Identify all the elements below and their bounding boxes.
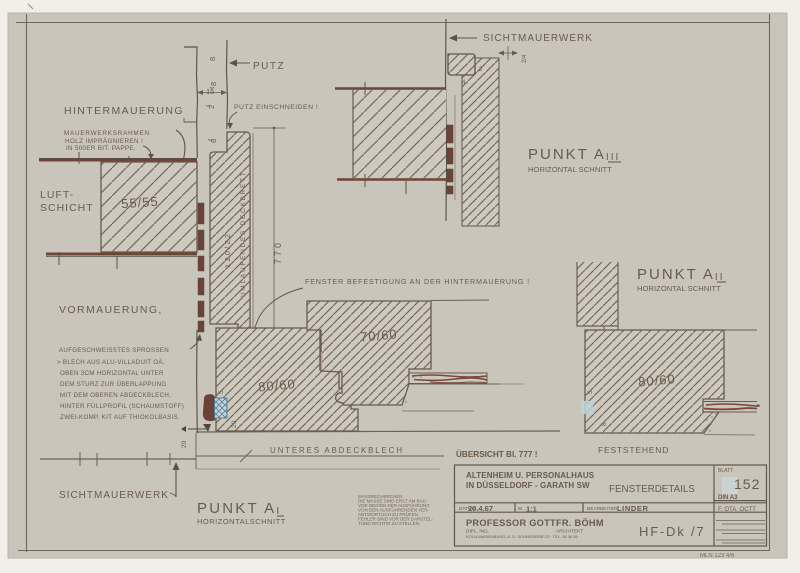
svg-text:55/55: 55/55 [121, 194, 160, 212]
svg-text:IN 500ER BIT. PAPPE.: IN 500ER BIT. PAPPE. [66, 145, 136, 152]
svg-text:ALTENHEIM U. PERSONALHAUS: ALTENHEIM U. PERSONALHAUS [466, 471, 595, 480]
svg-text:LUFT-: LUFT- [40, 189, 74, 201]
svg-text:8: 8 [209, 82, 218, 86]
svg-text:PUTZ: PUTZ [253, 61, 285, 72]
svg-text:SICHTMAUERWERK: SICHTMAUERWERK [59, 490, 169, 501]
svg-text:120/22: 120/22 [223, 232, 232, 268]
svg-text:UNTERES ABDECKBLECH: UNTERES ABDECKBLECH [270, 446, 404, 455]
svg-text:DEM STURZ ZUR ÜBERLAPPUNG: DEM STURZ ZUR ÜBERLAPPUNG [60, 381, 167, 388]
svg-text:8: 8 [209, 139, 218, 143]
svg-text:UMLAUFENDES DECKBRETT: UMLAUFENDES DECKBRETT [240, 170, 247, 297]
svg-text:IN DÜSSELDORF - GARATH SW: IN DÜSSELDORF - GARATH SW [466, 481, 590, 490]
svg-text:FENSTER BEFESTIGUNG AN DER HIN: FENSTER BEFESTIGUNG AN DER HINTERMAUERUN… [305, 277, 530, 286]
svg-text:HINTER FÜLLPROFIL (SCHAUMSTOFF: HINTER FÜLLPROFIL (SCHAUMSTOFF) [60, 403, 184, 410]
svg-text:SCHICHT: SCHICHT [40, 202, 94, 214]
svg-text:FESTSTEHEND: FESTSTEHEND [598, 445, 669, 455]
svg-text:HORIZONTALSCHNITT: HORIZONTALSCHNITT [197, 517, 286, 526]
svg-text:PUNKT AI: PUNKT AI [197, 500, 281, 517]
svg-text:PROFESSOR GOTTFR. BÖHM: PROFESSOR GOTTFR. BÖHM [466, 518, 604, 528]
svg-text:152: 152 [734, 476, 760, 492]
svg-text:MAUERWERKSRAHMEN: MAUERWERKSRAHMEN [64, 130, 150, 137]
svg-text:PUNKT AII: PUNKT AII [637, 266, 724, 283]
svg-text:8: 8 [601, 422, 608, 426]
svg-text:AUFGESCHWEISSTES SPROSSEN: AUFGESCHWEISSTES SPROSSEN [59, 347, 169, 354]
svg-text:KÖLN-MARIENBURG, A. D. SCHNEID: KÖLN-MARIENBURG, A. D. SCHNEIDERB 23 · T… [466, 534, 579, 539]
svg-text:ÜBERSICHT Bl. 777 !: ÜBERSICHT Bl. 777 ! [456, 449, 537, 459]
svg-text:20.4.67: 20.4.67 [468, 504, 493, 513]
svg-text:TUNG RICHTIG ZU STELLEN.: TUNG RICHTIG ZU STELLEN. [358, 521, 420, 526]
svg-text:ZWEI-KOMP. KIT AUF THIOKOLBASI: ZWEI-KOMP. KIT AUF THIOKOLBASIS. [60, 414, 180, 421]
svg-text:MLN 123 4/6: MLN 123 4/6 [700, 553, 735, 559]
svg-text:2: 2 [207, 105, 216, 109]
svg-text:SICHTMAUERWERK: SICHTMAUERWERK [483, 33, 593, 44]
svg-text:VORMAUERUNG,: VORMAUERUNG, [59, 304, 163, 316]
svg-text:HORIZONTAL SCHNITT: HORIZONTAL SCHNITT [637, 284, 721, 293]
svg-text:8: 8 [208, 57, 217, 61]
svg-text:HF-Dk /7: HF-Dk /7 [639, 524, 705, 539]
svg-text:BEARBEITER: BEARBEITER [587, 506, 618, 512]
svg-text:> BLECH AUS ALU-VILLADUIT OÄ.: > BLECH AUS ALU-VILLADUIT OÄ. [57, 359, 165, 366]
svg-text:BLATT: BLATT [718, 468, 733, 474]
svg-text:LINDER: LINDER [617, 504, 649, 513]
svg-text:5: 5 [587, 390, 594, 394]
svg-text:DIN A3: DIN A3 [718, 495, 738, 501]
svg-text:F. OTA. OCTT: F. OTA. OCTT [718, 507, 756, 513]
svg-text:5: 5 [218, 390, 225, 394]
svg-text:2/4: 2/4 [522, 54, 528, 63]
svg-text:770: 770 [273, 240, 283, 264]
svg-text:FENSTERDETAILS: FENSTERDETAILS [609, 484, 695, 495]
svg-text:M.: M. [518, 506, 523, 512]
svg-text:PUTZ EINSCHNEIDEN !: PUTZ EINSCHNEIDEN ! [234, 104, 318, 111]
svg-text:HINTERMAUERUNG: HINTERMAUERUNG [64, 105, 184, 117]
svg-text:15: 15 [206, 87, 214, 96]
svg-text:HORIZONTAL SCHNITT: HORIZONTAL SCHNITT [528, 165, 612, 174]
svg-text:20: 20 [181, 440, 188, 448]
svg-text:HOLZ IMPRÄGNIEREN !: HOLZ IMPRÄGNIEREN ! [65, 137, 143, 145]
svg-text:MIT DEM OBEREN ABDECKBLECH,: MIT DEM OBEREN ABDECKBLECH, [60, 392, 171, 399]
svg-text:1:1: 1:1 [526, 505, 537, 514]
svg-text:OBEN 3CM HORIZONTAL UNTER: OBEN 3CM HORIZONTAL UNTER [60, 370, 164, 377]
svg-text:20: 20 [231, 420, 238, 428]
